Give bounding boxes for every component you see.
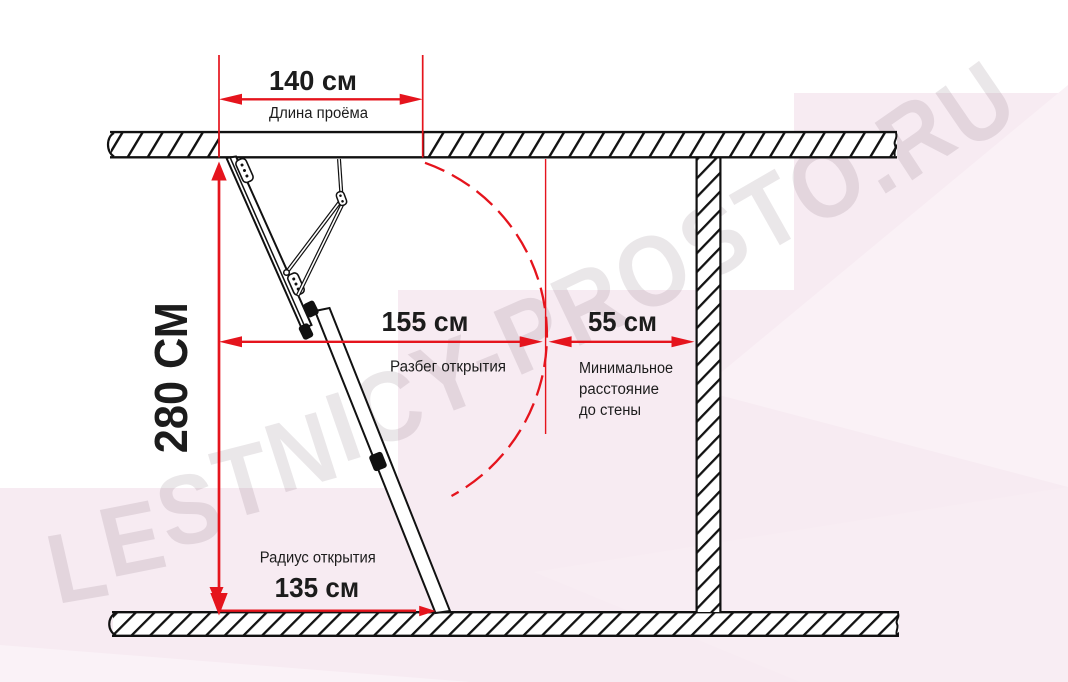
- svg-text:до стены: до стены: [579, 402, 641, 419]
- svg-text:155 см: 155 см: [382, 306, 469, 337]
- svg-text:Разбег открытия: Разбег открытия: [390, 359, 506, 376]
- svg-text:Радиус открытия: Радиус открытия: [260, 550, 376, 567]
- svg-text:Длина проёма: Длина проёма: [269, 105, 368, 122]
- svg-text:135 см: 135 см: [275, 572, 360, 603]
- svg-text:Минимальное: Минимальное: [579, 360, 673, 377]
- svg-text:55 см: 55 см: [588, 306, 657, 337]
- svg-text:280 СМ: 280 СМ: [145, 302, 197, 453]
- svg-text:140 см: 140 см: [269, 65, 357, 96]
- svg-text:расстояние: расстояние: [579, 381, 659, 398]
